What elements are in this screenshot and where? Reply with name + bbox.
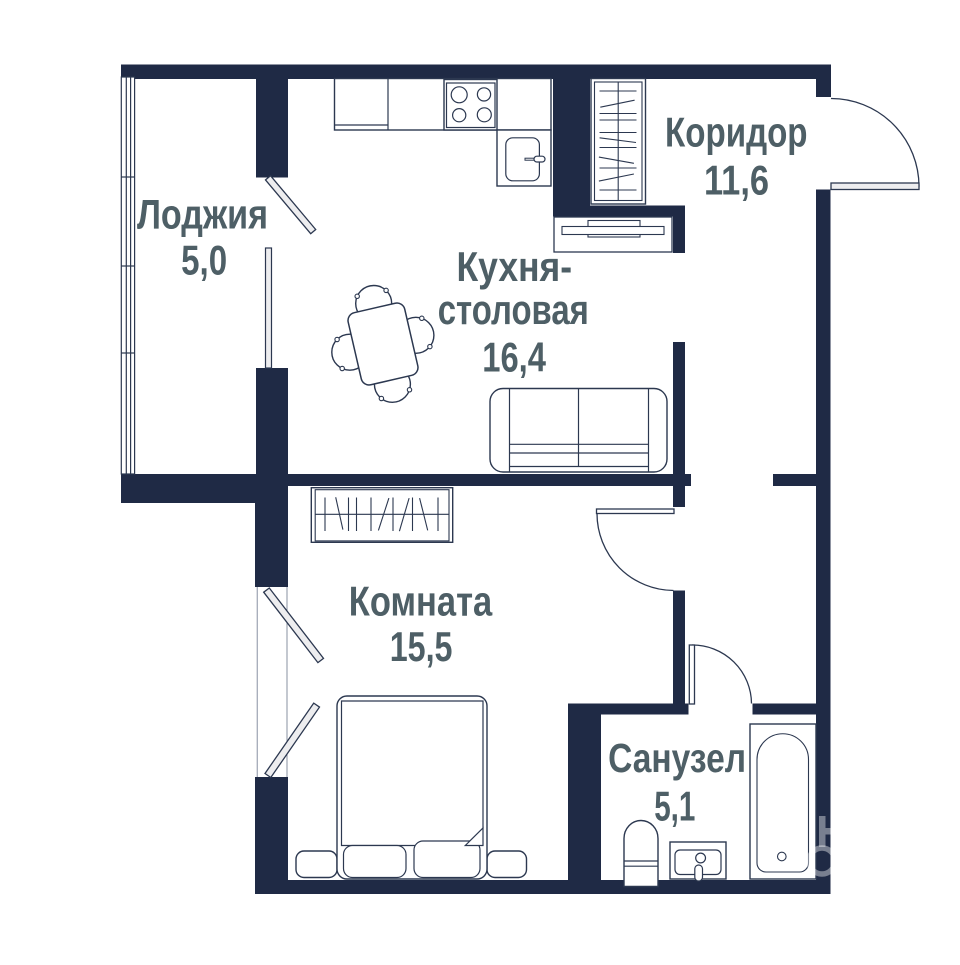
svg-text:Санузел: Санузел	[608, 735, 746, 781]
svg-text:5,0: 5,0	[181, 237, 227, 284]
svg-text:Лоджия: Лоджия	[137, 191, 268, 238]
svg-text:Коридор: Коридор	[665, 109, 808, 156]
svg-text:15,5: 15,5	[390, 623, 453, 670]
svg-text:столовая: столовая	[438, 286, 589, 333]
svg-text:Комната: Комната	[349, 578, 493, 625]
svg-text:16,4: 16,4	[482, 334, 546, 381]
svg-text:11,6: 11,6	[704, 157, 769, 204]
svg-text:5,1: 5,1	[654, 783, 695, 830]
svg-text:Кухня-: Кухня-	[457, 243, 573, 290]
